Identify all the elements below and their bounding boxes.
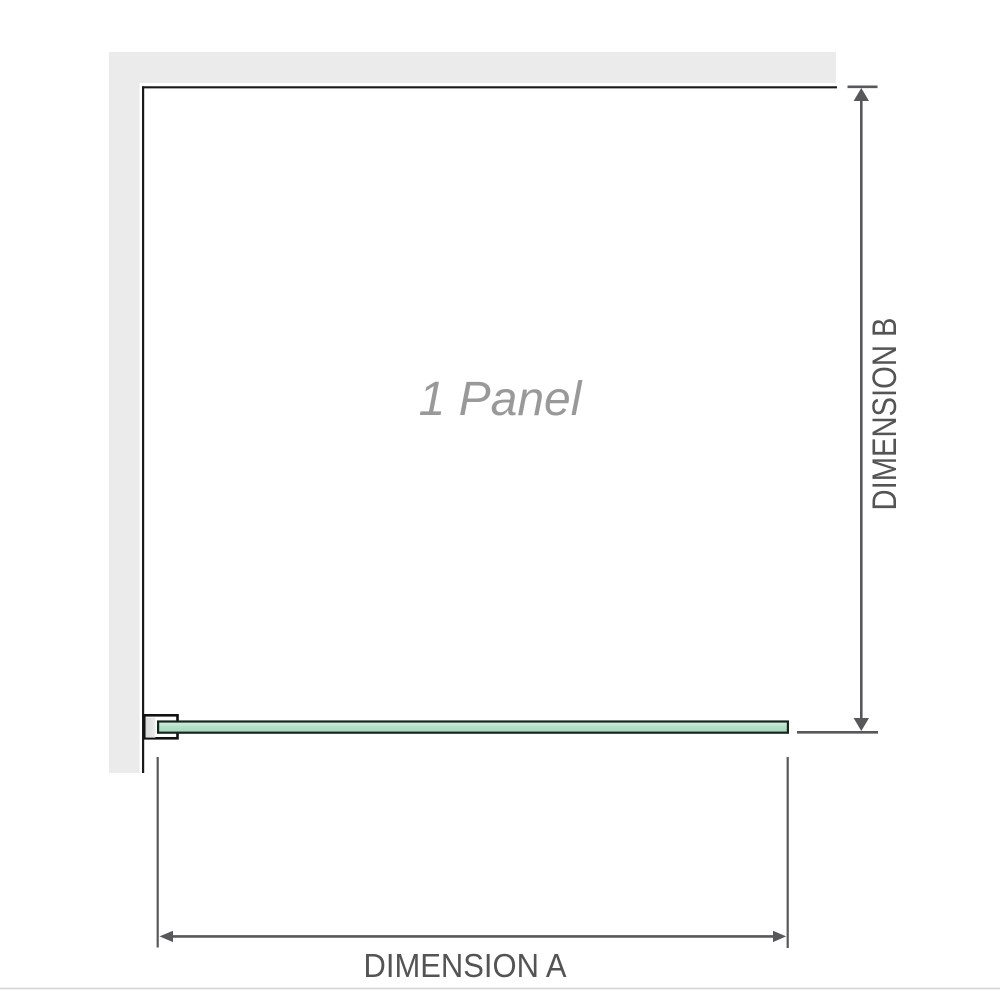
svg-text:DIMENSION B: DIMENSION B bbox=[866, 318, 904, 511]
svg-text:1 Panel: 1 Panel bbox=[419, 373, 583, 426]
svg-text:DIMENSION A: DIMENSION A bbox=[364, 947, 567, 984]
